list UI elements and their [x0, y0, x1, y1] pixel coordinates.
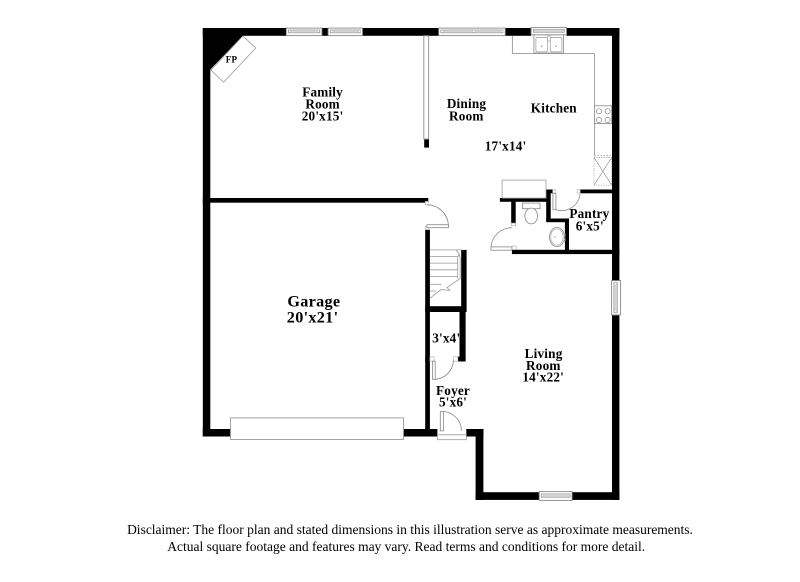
svg-text:14'x22': 14'x22': [522, 370, 564, 385]
svg-text:3'x4': 3'x4': [432, 331, 460, 346]
svg-text:17'x14': 17'x14': [485, 139, 527, 154]
svg-text:5'x6': 5'x6': [439, 395, 467, 410]
svg-text:Disclaimer: The floor plan and: Disclaimer: The floor plan and stated di…: [127, 522, 693, 537]
svg-text:Room: Room: [449, 109, 484, 124]
svg-text:FP: FP: [226, 55, 238, 65]
svg-text:20'x21': 20'x21': [287, 308, 339, 326]
svg-text:20'x15': 20'x15': [302, 109, 344, 124]
svg-text:Actual square footage and feat: Actual square footage and features may v…: [167, 539, 645, 554]
svg-text:Kitchen: Kitchen: [531, 101, 578, 116]
svg-text:6'x5': 6'x5': [576, 218, 604, 233]
